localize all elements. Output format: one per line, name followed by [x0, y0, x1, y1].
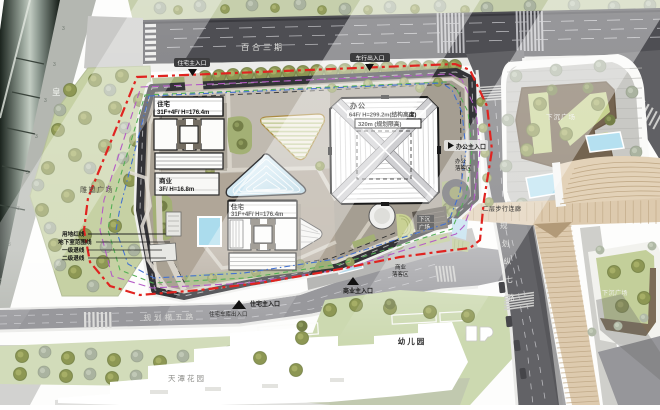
svg-text:3: 3 [26, 170, 29, 176]
svg-text:车行出入口: 车行出入口 [356, 54, 385, 62]
svg-text:3F/ H=16.8m: 3F/ H=16.8m [159, 187, 194, 193]
svg-text:落客区: 落客区 [392, 270, 409, 278]
svg-text:3: 3 [53, 62, 56, 68]
svg-text:雕塑广场: 雕塑广场 [80, 185, 114, 194]
svg-text:天潭花园: 天潭花园 [168, 373, 206, 383]
svg-text:3: 3 [44, 98, 47, 104]
svg-text:住宅主入口: 住宅主入口 [250, 300, 280, 308]
svg-text:落客区: 落客区 [455, 164, 472, 172]
svg-text:住宅主入口: 住宅主入口 [178, 59, 207, 67]
svg-text:二层步行连廊: 二层步行连廊 [482, 205, 521, 213]
svg-text:办公: 办公 [455, 157, 467, 165]
svg-text:划: 划 [502, 238, 510, 248]
svg-text:商业: 商业 [159, 176, 173, 185]
svg-text:下沉广场: 下沉广场 [546, 112, 576, 121]
svg-text:商业主入口: 商业主入口 [343, 287, 373, 295]
svg-text:一级退线: 一级退线 [62, 246, 85, 254]
svg-text:七: 七 [505, 275, 513, 284]
svg-text:地下室范围线: 地下室范围线 [58, 238, 92, 246]
svg-text:31F+4F/ H=176.4m: 31F+4F/ H=176.4m [157, 110, 209, 116]
svg-text:规划横五路: 规划横五路 [144, 311, 197, 322]
svg-text:百合三期: 百合三期 [241, 42, 285, 52]
svg-text:纵: 纵 [504, 257, 512, 266]
svg-text:下沉广场: 下沉广场 [602, 289, 628, 297]
svg-text:住宅车库出入口: 住宅车库出入口 [209, 310, 248, 318]
svg-text:规: 规 [500, 220, 508, 230]
svg-text:路: 路 [507, 292, 515, 302]
svg-text:用地红线: 用地红线 [61, 230, 85, 238]
svg-text:二级退线: 二级退线 [62, 254, 85, 262]
svg-text:皇: 皇 [52, 87, 61, 97]
svg-text:3: 3 [62, 26, 65, 32]
svg-text:办公主入口: 办公主入口 [456, 143, 486, 151]
svg-text:商业: 商业 [395, 263, 407, 271]
svg-text:3: 3 [35, 134, 38, 140]
svg-text:幼儿园: 幼儿园 [398, 336, 427, 346]
